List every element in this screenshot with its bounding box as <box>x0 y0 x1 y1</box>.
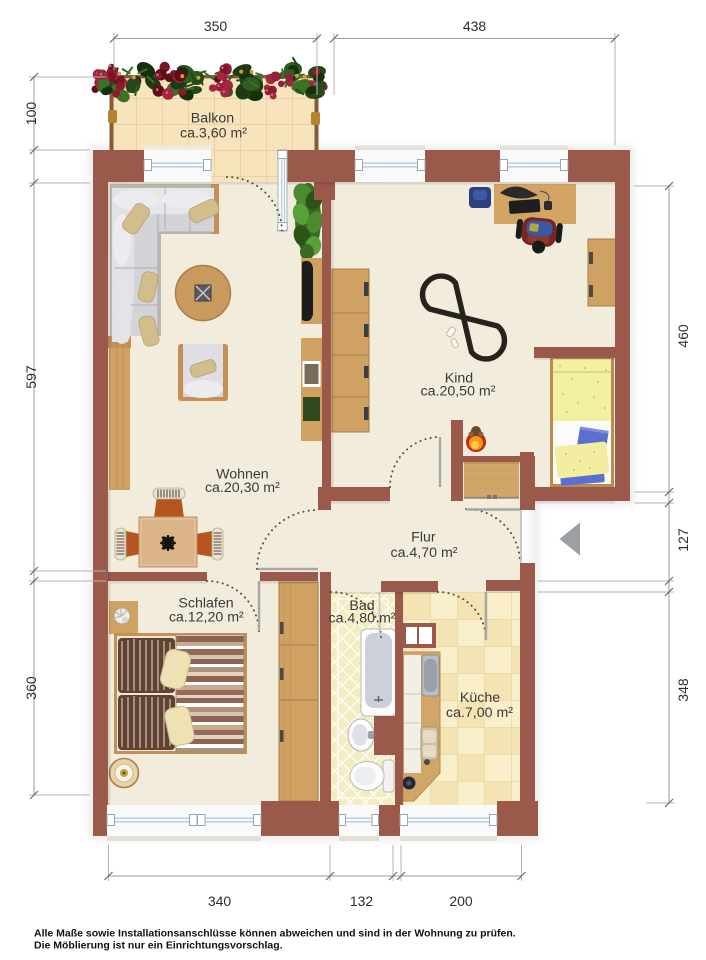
svg-text:132: 132 <box>350 893 374 909</box>
svg-text:Küche: Küche <box>460 690 500 706</box>
svg-text:350: 350 <box>204 18 228 34</box>
svg-text:ca.4,80 m²: ca.4,80 m² <box>328 611 395 627</box>
svg-text:ca.4,70 m²: ca.4,70 m² <box>390 545 457 561</box>
svg-text:340: 340 <box>208 893 232 909</box>
svg-text:ca.20,50 m²: ca.20,50 m² <box>421 384 496 400</box>
svg-text:360: 360 <box>23 676 39 700</box>
svg-text:438: 438 <box>463 18 487 34</box>
svg-text:597: 597 <box>23 365 39 389</box>
svg-text:Alle Maße sowie Installationsa: Alle Maße sowie Installationsanschlüsse … <box>34 928 516 940</box>
svg-text:Die Möblierung ist nur ein Ein: Die Möblierung ist nur ein Einrichtungsv… <box>34 940 283 952</box>
svg-text:Balkon: Balkon <box>191 111 234 127</box>
svg-text:100: 100 <box>23 102 39 126</box>
svg-text:ca.3,60 m²: ca.3,60 m² <box>180 125 247 141</box>
svg-text:348: 348 <box>675 678 691 702</box>
svg-text:ca.12,20 m²: ca.12,20 m² <box>169 610 244 626</box>
svg-text:Flur: Flur <box>411 530 436 546</box>
svg-text:460: 460 <box>675 324 691 348</box>
svg-text:ca.20,30 m²: ca.20,30 m² <box>205 480 280 496</box>
svg-text:ca.7,00 m²: ca.7,00 m² <box>446 705 513 721</box>
svg-text:200: 200 <box>449 893 473 909</box>
svg-text:127: 127 <box>675 528 691 552</box>
